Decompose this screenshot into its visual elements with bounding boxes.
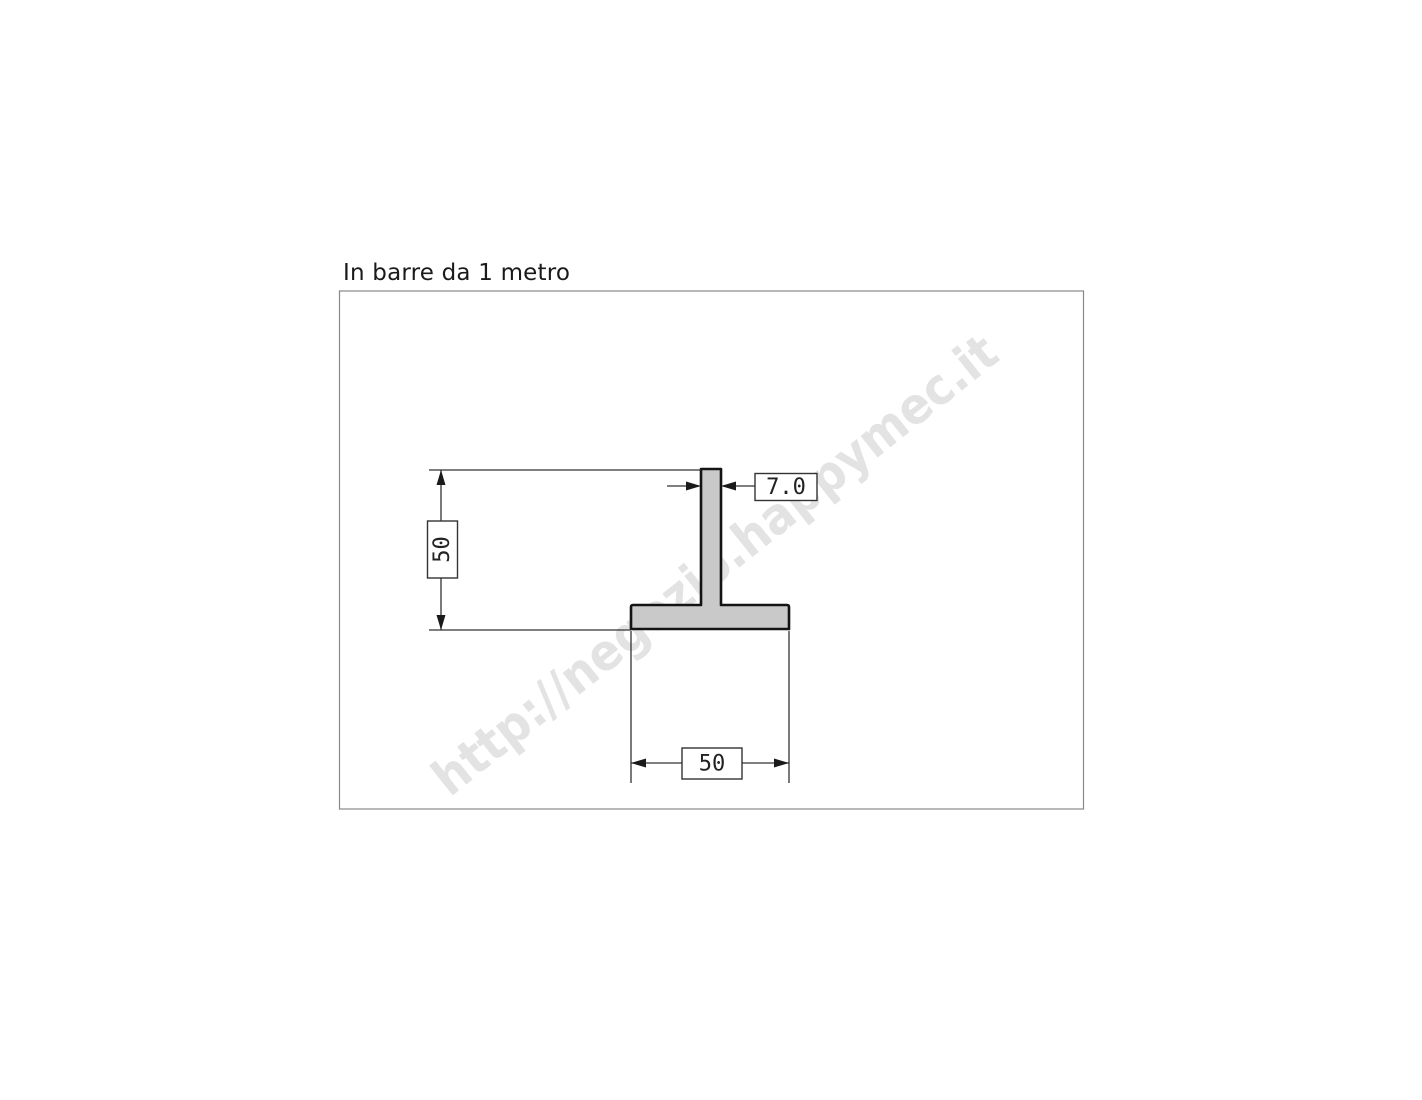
page: In barre da 1 metro http://negozio.happy… xyxy=(0,0,1422,1100)
dimension-flange-width: 50 xyxy=(631,631,789,783)
arrow-up-icon xyxy=(437,470,446,485)
arrow-right-icon xyxy=(774,759,789,768)
height-label: 50 xyxy=(430,536,455,563)
flange-width-label: 50 xyxy=(699,752,726,777)
dimension-web-thickness: 7.0 xyxy=(667,474,817,501)
arrow-left-icon xyxy=(631,759,646,768)
arrow-right-icon xyxy=(686,482,701,491)
web-thickness-label: 7.0 xyxy=(766,475,806,500)
technical-drawing: http://negozio.happymec.it 50 7.0 xyxy=(0,0,1422,1100)
arrow-down-icon xyxy=(437,615,446,630)
arrow-left-icon xyxy=(721,482,736,491)
